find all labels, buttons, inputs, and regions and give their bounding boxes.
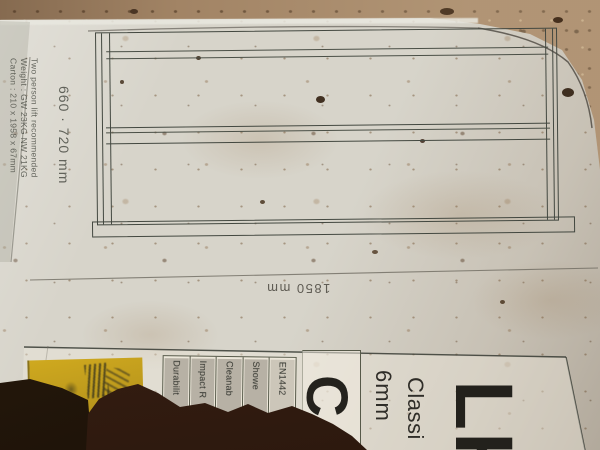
brand-letters: LK bbox=[450, 380, 517, 450]
ratings-cell: Impact R bbox=[197, 359, 208, 399]
ratings-cell: Cleanab bbox=[224, 359, 235, 396]
ratings-cell: Durabilit bbox=[171, 358, 182, 395]
width-dimension-label: 660 · 720 mm bbox=[56, 86, 72, 184]
certification-letter: C bbox=[297, 375, 355, 417]
handling-note-line: Weight : GW 23KG NW 21KG bbox=[19, 58, 30, 228]
photo-canvas: 660 · 720 mm Two person lift recommended… bbox=[0, 0, 600, 450]
length-dimension-label: 1850 mm bbox=[250, 281, 346, 296]
handling-notes: Two person lift recommended Weight : GW … bbox=[8, 58, 40, 228]
ratings-cell: EN1442 bbox=[277, 360, 287, 396]
glass-thickness-label: 6mm bbox=[370, 370, 396, 422]
series-name-label: Classi bbox=[402, 377, 428, 440]
handling-note-line: Two person lift recommended bbox=[29, 58, 40, 228]
ratings-cell: Showe bbox=[251, 359, 261, 390]
handling-note-line: Carton : 210 x 1958 x 67mm bbox=[8, 58, 19, 228]
screen-diagram bbox=[95, 28, 559, 226]
